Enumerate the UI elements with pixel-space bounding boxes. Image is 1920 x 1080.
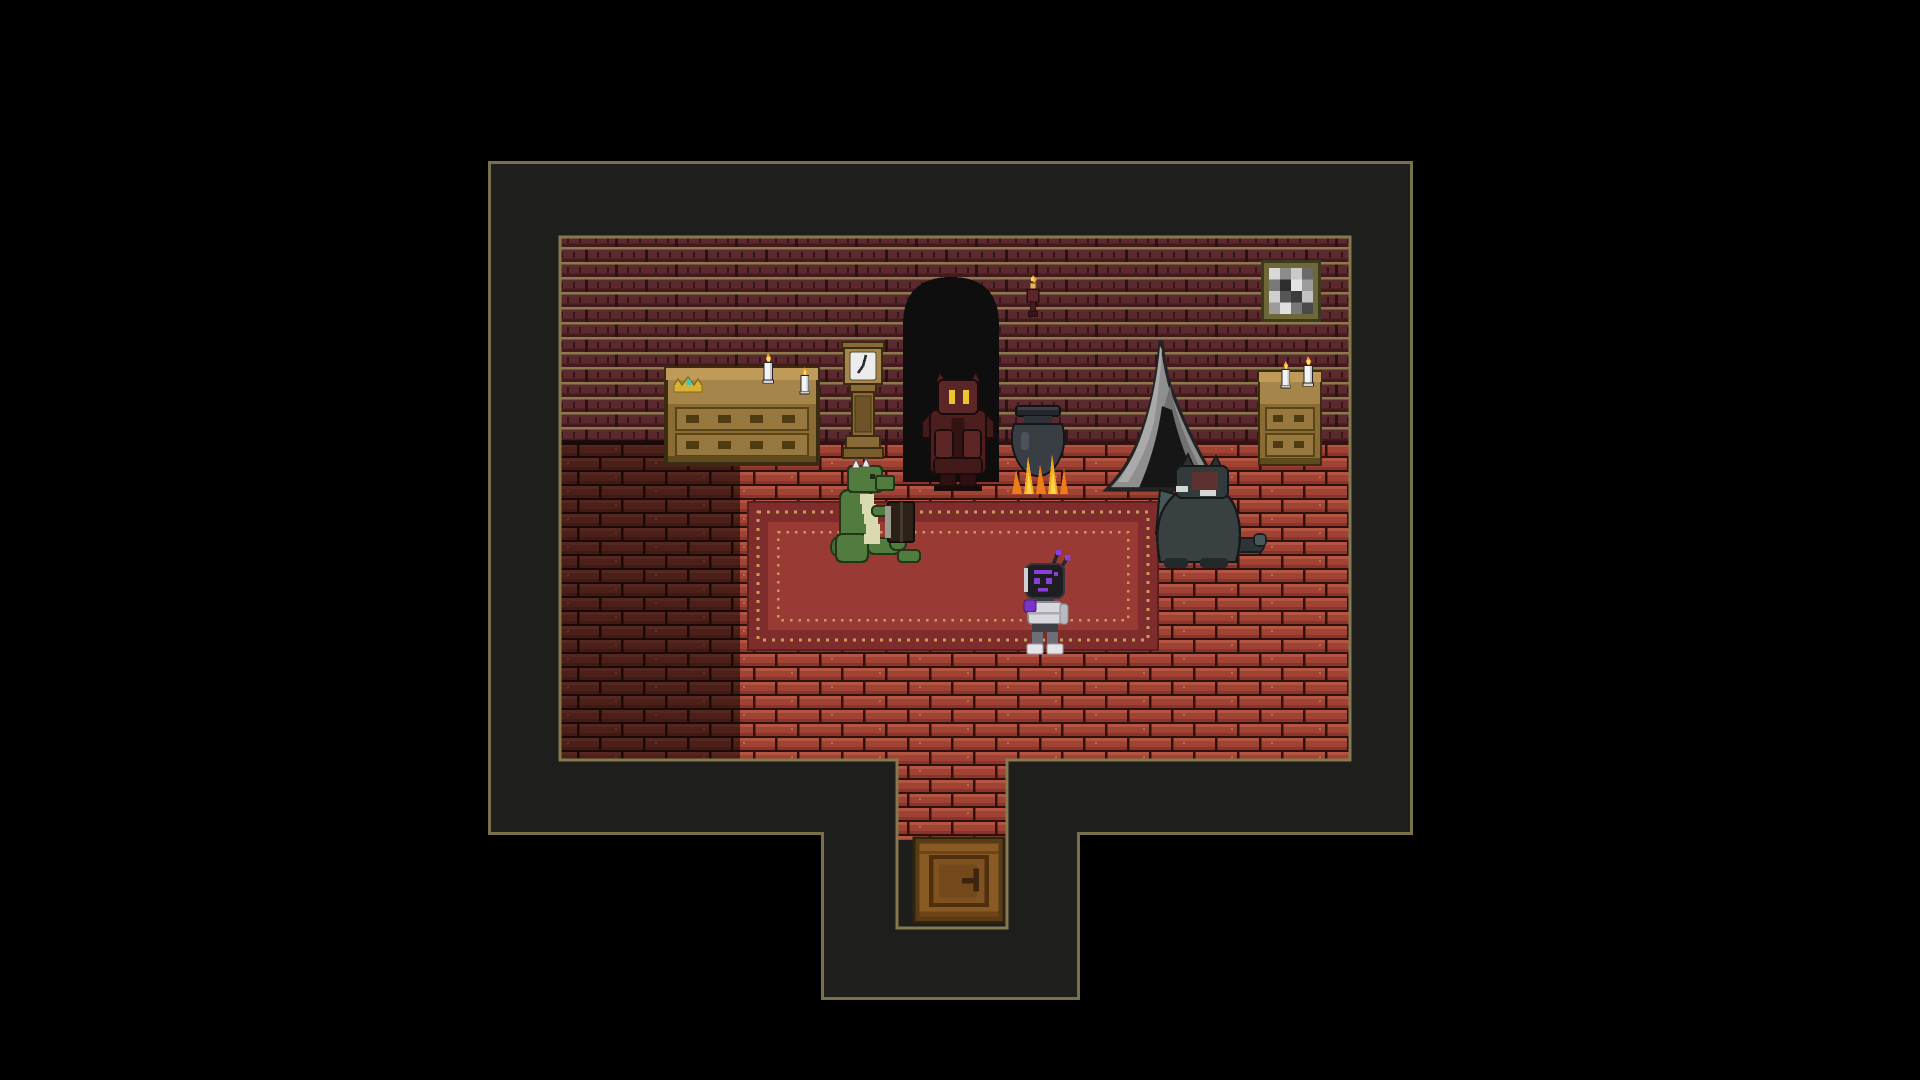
candle-right-2 [1300, 355, 1316, 395]
candle-left-2 [797, 366, 812, 402]
lizard-eye [870, 474, 875, 479]
cauldron-svg [1002, 400, 1074, 494]
game-screen[interactable] [0, 0, 1920, 1080]
picture-svg [1261, 260, 1321, 322]
corridor-floor [897, 760, 1007, 840]
grandfather-clock[interactable] [836, 340, 890, 462]
hooded-figure[interactable] [914, 370, 1002, 492]
wall-sconce [1022, 274, 1044, 320]
carpet [748, 502, 1158, 650]
robot-svg [1012, 550, 1078, 656]
candle-svg [1300, 355, 1316, 395]
candle-svg [797, 366, 812, 402]
crown-svg [670, 374, 710, 394]
eye-right [963, 390, 969, 404]
cauldron[interactable] [1002, 400, 1074, 494]
sconce-svg [1022, 274, 1044, 320]
framed-picture[interactable] [1261, 260, 1321, 322]
lizard-character[interactable] [824, 458, 924, 570]
candle-svg [1278, 360, 1293, 396]
crown-gem [686, 380, 691, 385]
robot-character[interactable] [1012, 550, 1078, 656]
floor-shadow [560, 440, 740, 760]
room-interior [555, 232, 1355, 932]
crown [670, 374, 710, 394]
candle-left-1 [760, 352, 776, 392]
hooded-figure-svg [914, 370, 1002, 492]
cat-figure[interactable] [1140, 446, 1272, 572]
eye-left [949, 390, 955, 404]
book [885, 502, 914, 542]
room-svg [555, 232, 1355, 932]
cat-svg [1140, 446, 1272, 572]
candle-right-1 [1278, 360, 1293, 396]
candle-svg [760, 352, 776, 392]
lizard-svg [824, 458, 924, 570]
clock-svg [836, 340, 890, 462]
door-svg [912, 834, 1006, 926]
door[interactable] [912, 834, 1006, 926]
